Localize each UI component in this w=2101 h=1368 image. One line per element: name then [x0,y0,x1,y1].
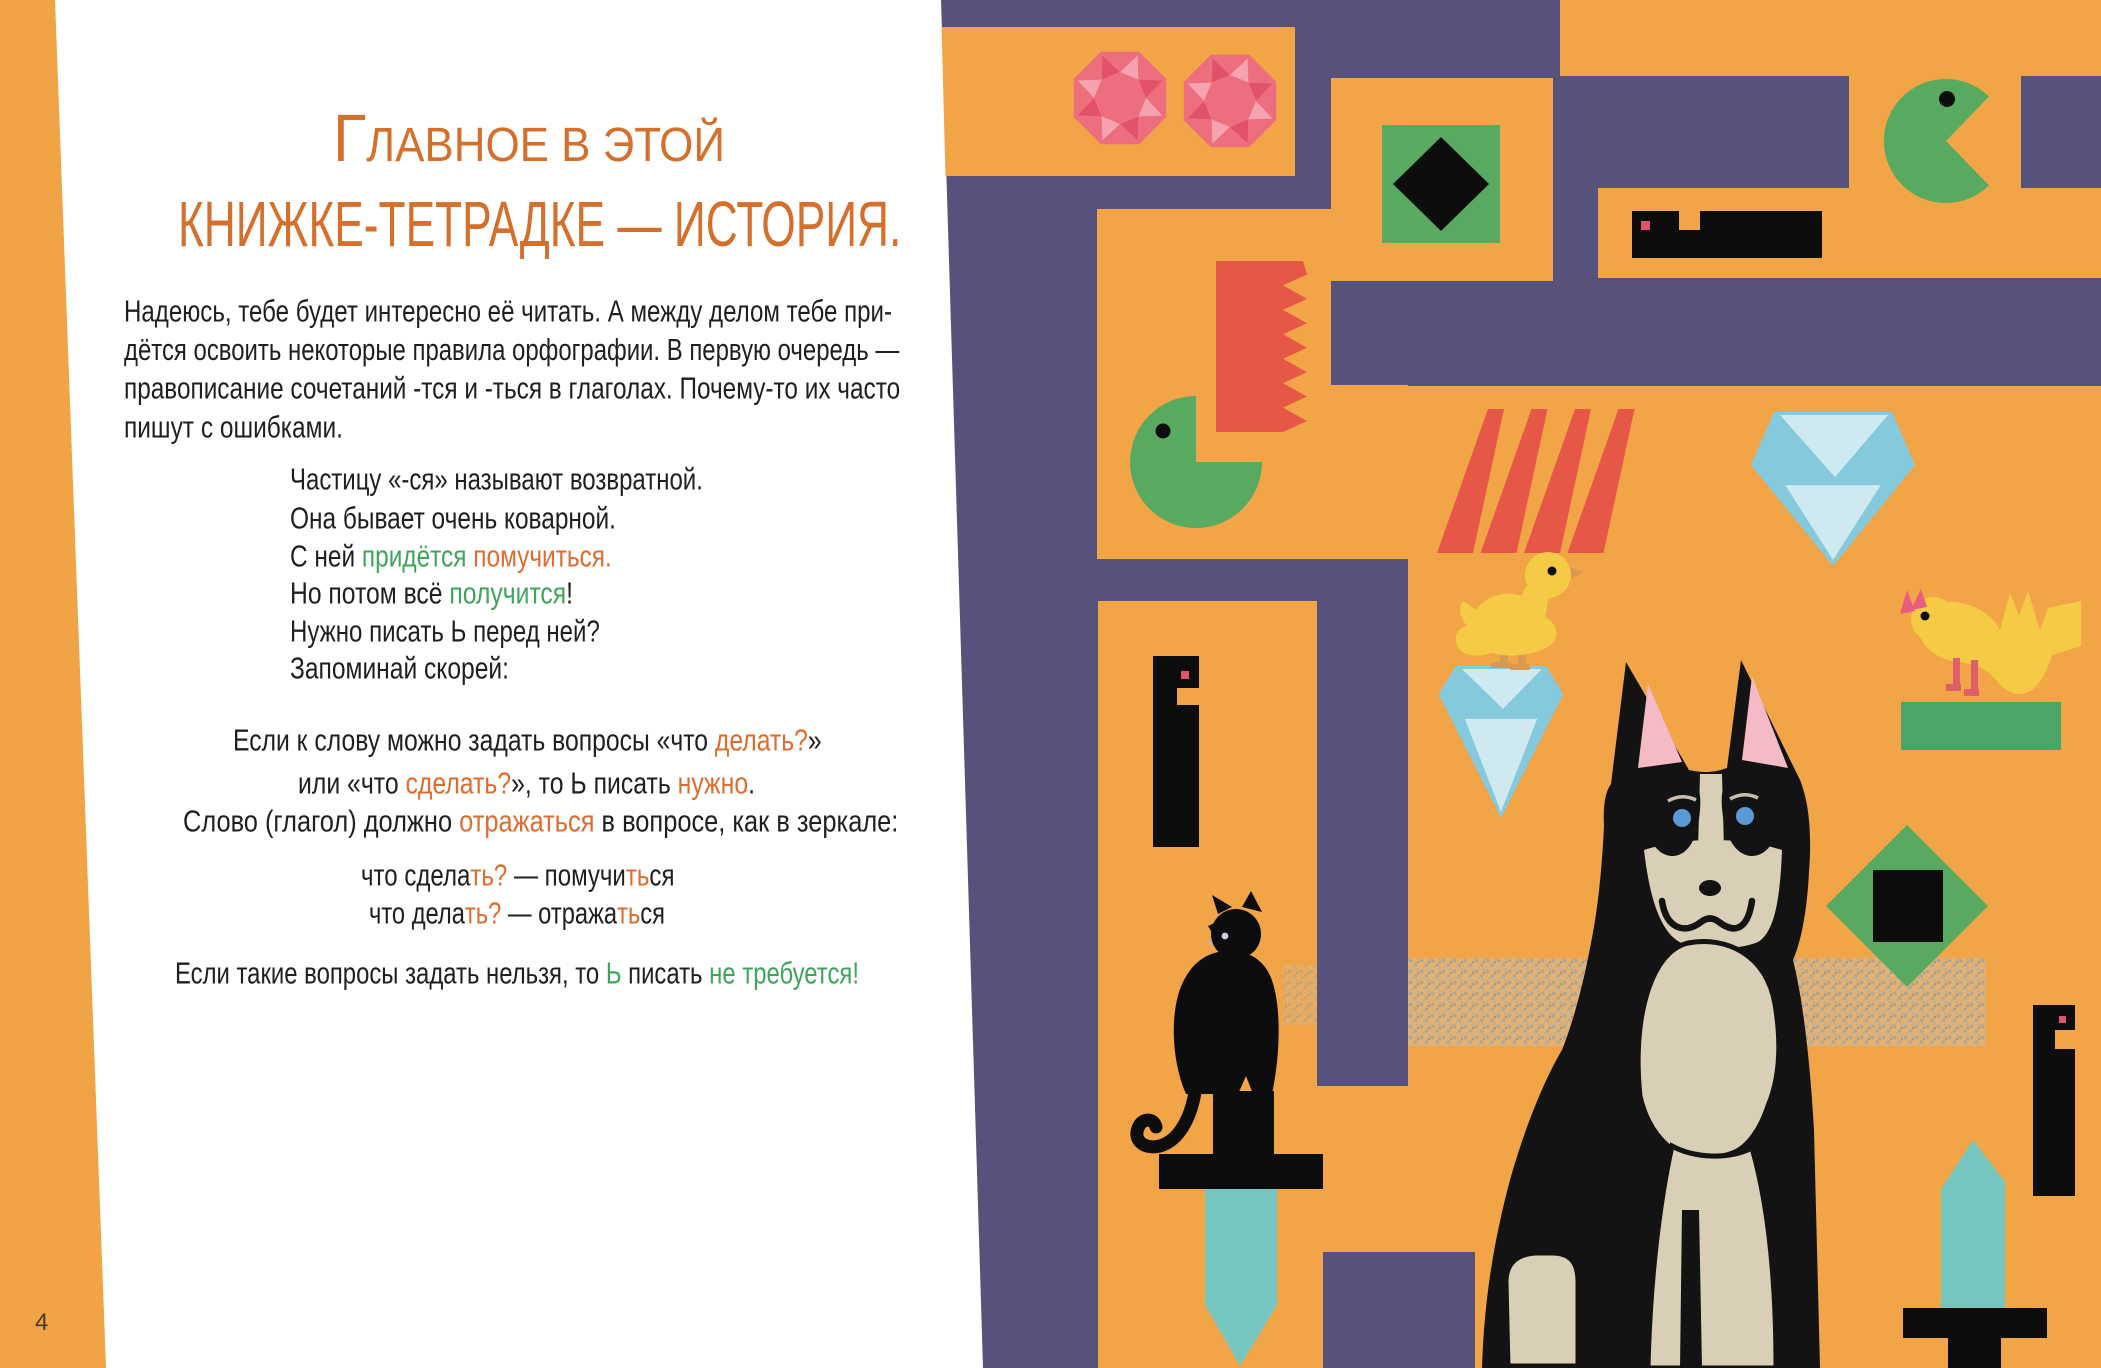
svg-text:Слово (глагол) должно отражать: Слово (глагол) должно отражаться в вопро… [183,804,898,839]
svg-text:Если такие вопросы задать нель: Если такие вопросы задать нельзя, то Ь п… [175,956,859,991]
svg-text:пишут с ошибками.: пишут с ошибками. [124,410,343,444]
svg-text:Если к слову можно задать вопр: Если к слову можно задать вопросы «что д… [233,723,822,757]
svg-text:правописание сочетаний -тся и: правописание сочетаний -тся и -ться в гл… [124,371,900,405]
svg-text:что делать? — отражаться: что делать? — отражаться [369,895,665,930]
svg-text:Но потом всё получится!: Но потом всё получится! [290,576,573,610]
svg-text:или «что сделать?», то Ь писат: или «что сделать?», то Ь писать нужно. [298,766,755,800]
svg-text:Нужно писать Ь перед ней?: Нужно писать Ь перед ней? [290,614,600,649]
svg-text:что сделать? — помучиться: что сделать? — помучиться [361,858,674,893]
svg-text:Она бывает очень коварной.: Она бывает очень коварной. [290,501,616,535]
svg-text:дётся освоить некоторые правил: дётся освоить некоторые правила орфограф… [124,332,900,367]
svg-text:Частицу «-ся» называют возврат: Частицу «-ся» называют возвратной. [290,462,703,497]
svg-text:Запоминай скорей:: Запоминай скорей: [290,651,509,685]
svg-text:Надеюсь, тебе будет интересно: Надеюсь, тебе будет интересно её читать.… [124,294,892,329]
svg-text:КНИЖКЕ-ТЕТРАДКЕ — ИСТОРИЯ.: КНИЖКЕ-ТЕТРАДКЕ — ИСТОРИЯ. [178,188,901,260]
svg-text:С ней придётся помучиться.: С ней придётся помучиться. [290,539,612,573]
svg-text:4: 4 [35,1309,48,1336]
